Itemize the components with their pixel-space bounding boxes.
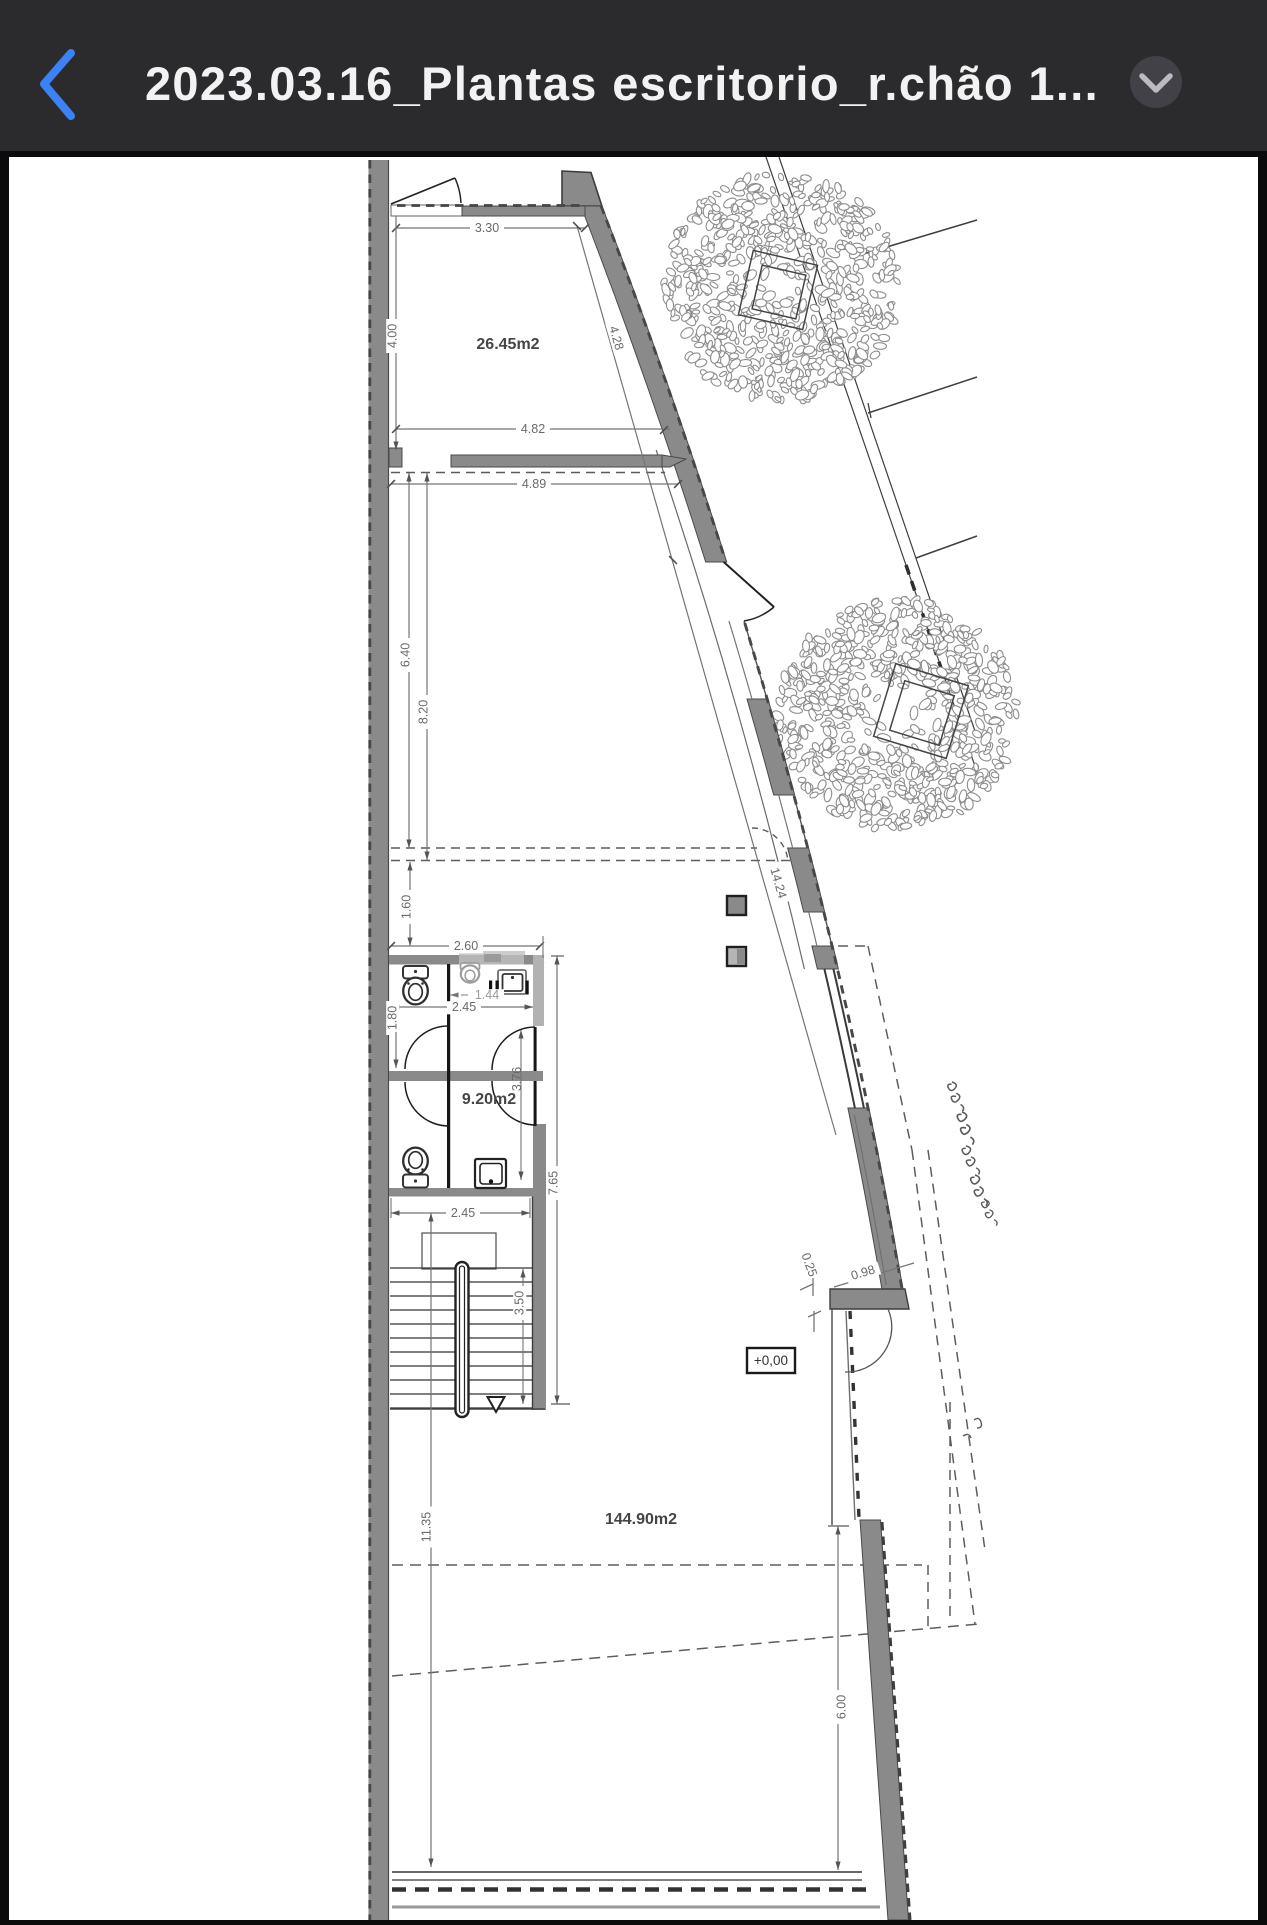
- svg-text:11.35: 11.35: [420, 1512, 434, 1542]
- svg-text:6.00: 6.00: [835, 1695, 849, 1719]
- svg-text:1.60: 1.60: [400, 895, 414, 919]
- svg-text:2.45: 2.45: [452, 1000, 476, 1014]
- svg-text:1.80: 1.80: [386, 1006, 400, 1030]
- svg-text:2023.03.16_Plantas escritorio_: 2023.03.16_Plantas escritorio_r.chão 1..…: [145, 57, 1099, 110]
- svg-text:4.89: 4.89: [522, 477, 546, 491]
- svg-text:3.76: 3.76: [510, 1067, 524, 1091]
- svg-text:3.30: 3.30: [475, 221, 499, 235]
- svg-text:4.82: 4.82: [521, 422, 545, 436]
- svg-text:6.40: 6.40: [399, 643, 413, 667]
- svg-text:3.50: 3.50: [513, 1291, 527, 1315]
- svg-text:7.65: 7.65: [547, 1171, 561, 1195]
- svg-text:8.20: 8.20: [417, 700, 431, 724]
- svg-text:144.90m2: 144.90m2: [605, 1511, 677, 1528]
- svg-text:2.45: 2.45: [451, 1206, 475, 1220]
- svg-text:2.60: 2.60: [454, 939, 478, 953]
- svg-text:4.00: 4.00: [386, 324, 400, 348]
- svg-text:+0,00: +0,00: [754, 1353, 788, 1368]
- svg-text:1.44: 1.44: [475, 988, 499, 1002]
- svg-text:26.45m2: 26.45m2: [476, 336, 539, 353]
- svg-text:9.20m2: 9.20m2: [462, 1091, 516, 1108]
